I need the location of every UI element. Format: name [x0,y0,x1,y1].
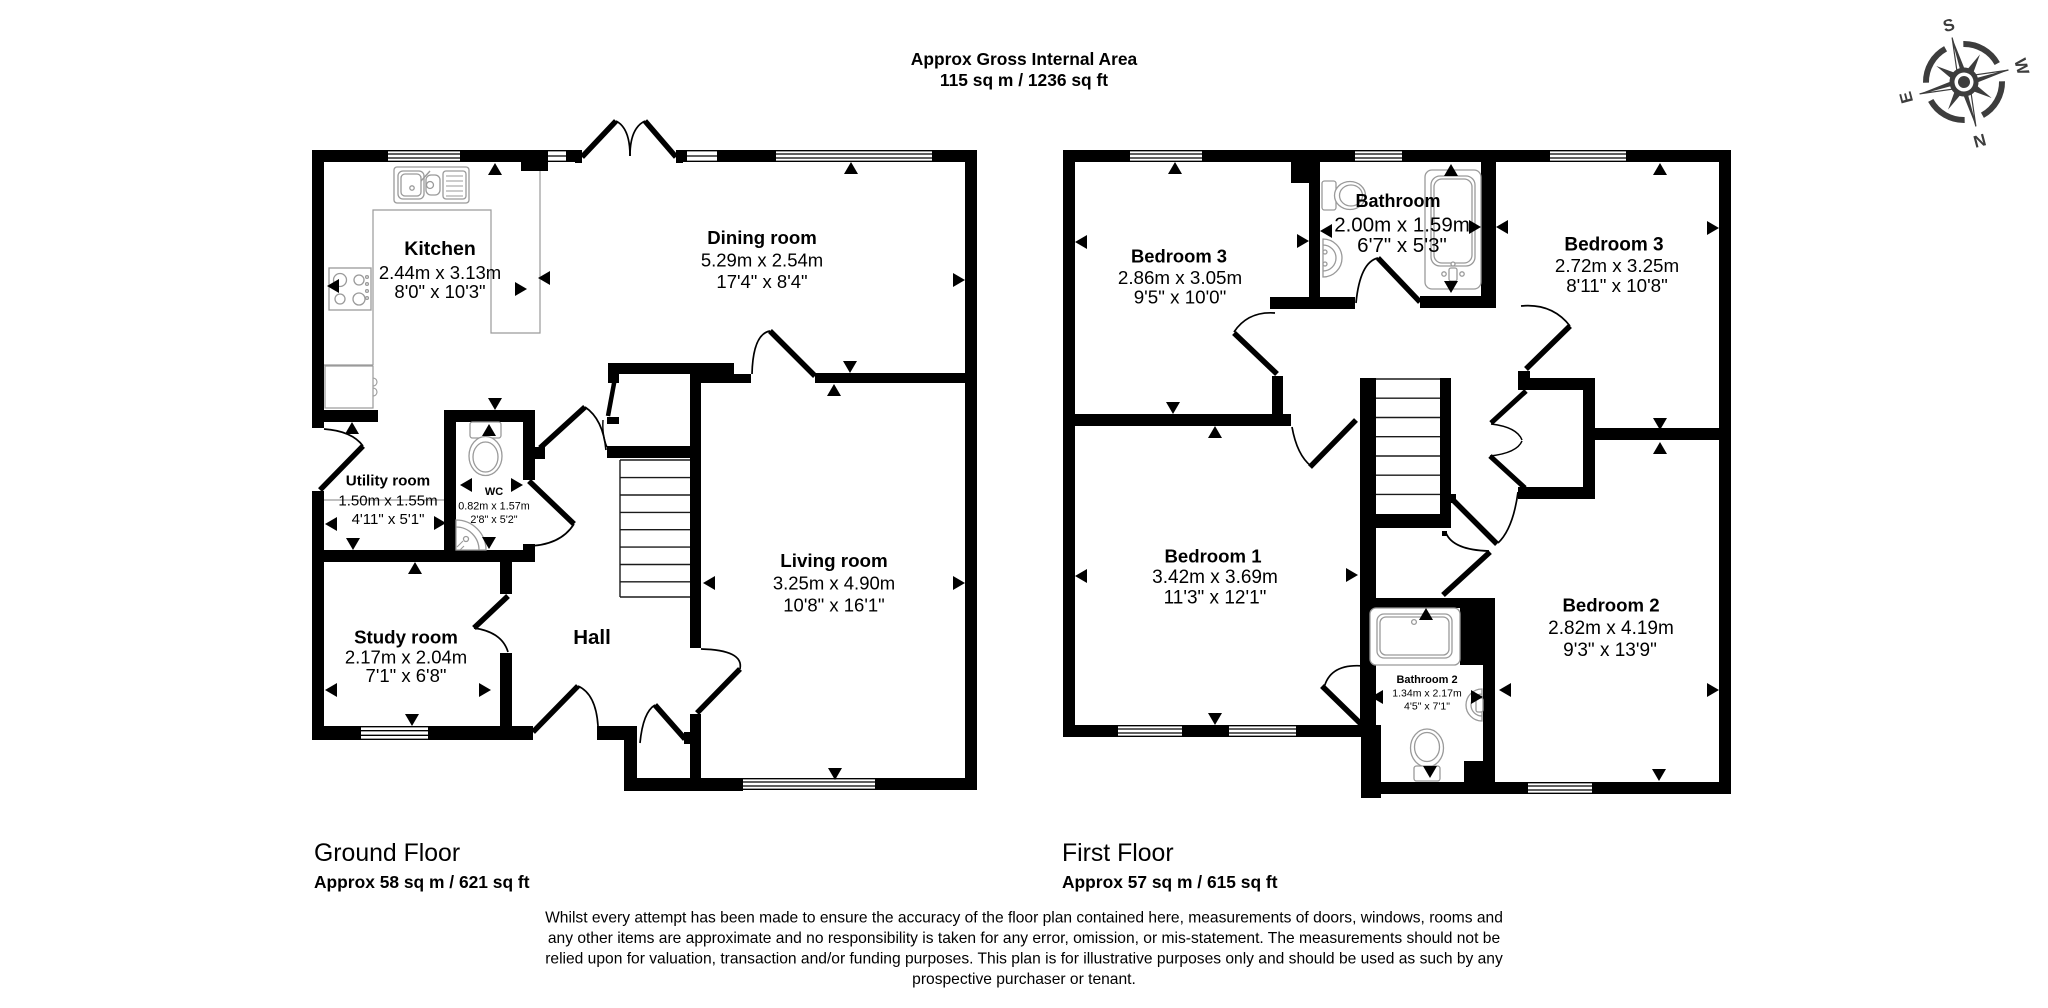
svg-text:Dining room: Dining room [707,227,816,248]
svg-text:7'1" x 6'8": 7'1" x 6'8" [366,665,447,686]
svg-text:2.44m x 3.13m: 2.44m x 3.13m [379,262,501,283]
svg-text:Ground Floor: Ground Floor [314,840,460,867]
svg-text:5.29m x 2.54m: 5.29m x 2.54m [701,250,823,271]
svg-text:2.86m x 3.05m: 2.86m x 3.05m [1118,267,1242,288]
svg-text:Bathroom 2: Bathroom 2 [1396,674,1457,686]
svg-text:Bedroom 2: Bedroom 2 [1562,595,1659,616]
svg-text:Whilst every attempt has been: Whilst every attempt has been made to en… [545,910,1503,927]
svg-text:6'7" x 5'3": 6'7" x 5'3" [1357,234,1447,257]
svg-text:2'8" x 5'2": 2'8" x 5'2" [470,514,517,526]
svg-text:9'3" x 13'9": 9'3" x 13'9" [1563,640,1657,661]
svg-text:2.72m x 3.25m: 2.72m x 3.25m [1555,255,1679,276]
svg-text:Living room: Living room [780,550,887,571]
svg-text:3.42m x 3.69m: 3.42m x 3.69m [1152,567,1278,588]
svg-text:First Floor: First Floor [1062,840,1174,867]
svg-text:2.82m x 4.19m: 2.82m x 4.19m [1548,618,1674,639]
svg-text:11'3" x 12'1": 11'3" x 12'1" [1164,588,1267,609]
svg-text:Utility room: Utility room [346,473,430,490]
svg-text:Bedroom 3: Bedroom 3 [1131,246,1227,267]
svg-text:Kitchen: Kitchen [404,238,476,260]
svg-text:any other items are approximat: any other items are approximate and no r… [548,930,1500,947]
svg-text:4'11" x 5'1": 4'11" x 5'1" [352,511,425,528]
svg-text:Bedroom 3: Bedroom 3 [1564,235,1663,256]
svg-text:Approx 58 sq m / 621 sq ft: Approx 58 sq m / 621 sq ft [314,872,530,892]
svg-text:Bedroom 1: Bedroom 1 [1164,546,1261,567]
svg-text:0.82m x 1.57m: 0.82m x 1.57m [458,501,529,513]
svg-text:8'11" x 10'8": 8'11" x 10'8" [1566,275,1668,296]
svg-text:Hall: Hall [573,626,611,649]
svg-text:10'8" x 16'1": 10'8" x 16'1" [783,595,884,616]
svg-text:17'4" x 8'4": 17'4" x 8'4" [716,271,807,292]
svg-text:prospective purchaser or tenan: prospective purchaser or tenant. [912,971,1136,988]
svg-text:8'0" x 10'3": 8'0" x 10'3" [394,281,485,302]
svg-text:WC: WC [485,486,503,498]
svg-text:9'5" x 10'0": 9'5" x 10'0" [1134,287,1227,308]
svg-text:relied upon for valuation, tra: relied upon for valuation, transaction a… [545,951,1503,968]
svg-text:1.50m x 1.55m: 1.50m x 1.55m [338,493,437,510]
svg-text:Approx Gross Internal Area: Approx Gross Internal Area [911,49,1138,69]
svg-text:4'5" x 7'1": 4'5" x 7'1" [1404,701,1450,713]
svg-text:Bathroom: Bathroom [1356,191,1441,211]
svg-text:115 sq m / 1236 sq ft: 115 sq m / 1236 sq ft [940,70,1108,90]
svg-text:1.34m x 2.17m: 1.34m x 2.17m [1392,688,1462,700]
svg-text:Approx 57 sq m / 615 sq ft: Approx 57 sq m / 615 sq ft [1062,872,1278,892]
svg-text:3.25m x 4.90m: 3.25m x 4.90m [773,573,895,594]
svg-text:Study room: Study room [354,627,458,648]
